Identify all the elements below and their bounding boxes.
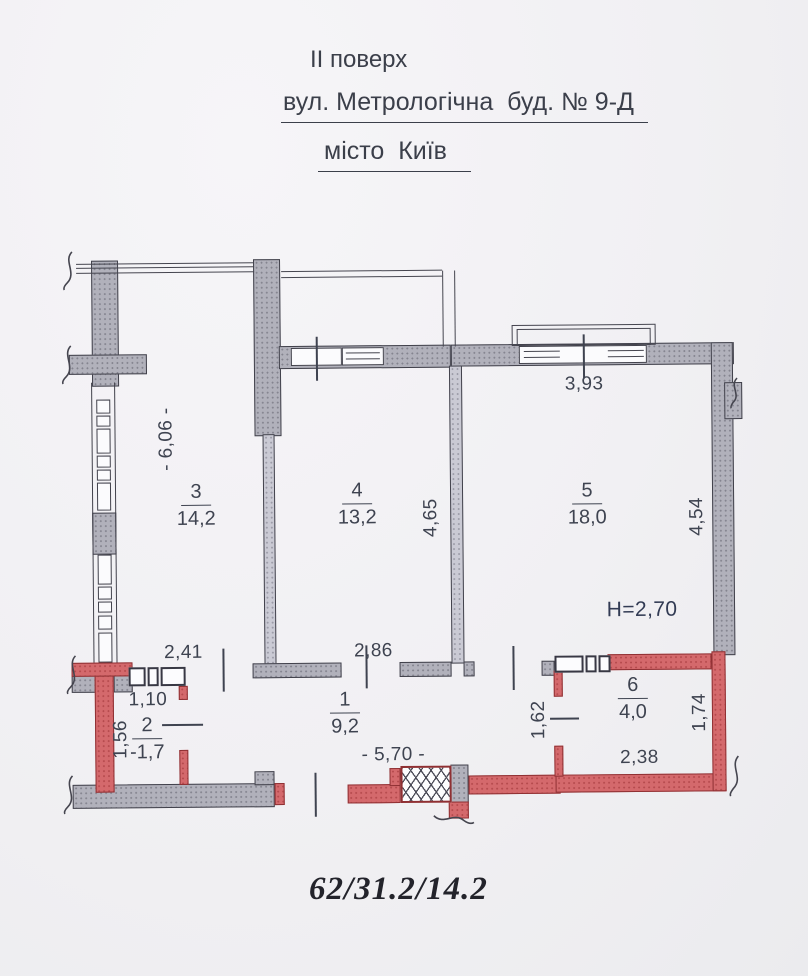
dim-mid-wall: 4,65 — [420, 498, 442, 537]
room2-door-leaf — [161, 667, 186, 686]
entrance-door-leaf — [598, 655, 610, 672]
room-3-label: 3 14,2 — [166, 481, 226, 532]
loggia-line-top — [281, 270, 442, 278]
red-room6-left-top — [554, 671, 563, 697]
dim-tick — [583, 334, 585, 378]
room-1-area: 9,2 — [331, 713, 359, 738]
wall-bottom-bump — [254, 771, 274, 785]
dim-top-right-window: 3,93 — [565, 373, 604, 395]
left-facade-wall — [91, 383, 117, 665]
room-3-area: 14,2 — [177, 506, 216, 531]
loggia-line-right — [442, 271, 456, 347]
room-1-label: 1 9,2 — [319, 688, 371, 738]
vent-column — [450, 764, 468, 803]
corridor-top-hatch-b — [400, 662, 452, 677]
dim-corridor-seg-right: 2,86 — [354, 640, 393, 662]
partition-r3-r4 — [263, 434, 277, 665]
dim-corridor-length: - 5,70 - — [362, 744, 426, 767]
room-5-area: 18,0 — [568, 504, 607, 529]
dim-tick — [314, 773, 316, 817]
room-4-area: 13,2 — [338, 504, 377, 529]
window-segment — [97, 470, 111, 481]
dim-room6-width: 2,38 — [620, 747, 659, 769]
window-segment — [96, 429, 110, 454]
break-mark — [726, 755, 742, 797]
break-mark — [63, 655, 79, 695]
break-mark — [59, 345, 75, 385]
room-2-number: 2 — [132, 714, 161, 739]
window-segment — [96, 400, 110, 414]
red-room6-left-bottom — [554, 746, 563, 777]
scanned-page: II поверх вул. Метрологічна буд. № 9-Д м… — [0, 0, 808, 976]
window-segment — [96, 416, 110, 427]
apartment-areas-label: 62/31.2/14.2 — [309, 871, 488, 908]
entrance-door-leaf — [585, 655, 596, 672]
dim-room2-depth: 1,56 — [110, 720, 132, 759]
vent-shaft — [400, 766, 451, 803]
red-bottom-b — [348, 784, 401, 803]
dim-tick — [222, 649, 224, 692]
wall-party-stub-left — [69, 354, 147, 375]
room-6-area: 4,0 — [619, 699, 647, 724]
dim-left-wall-height: - 6,06 - — [155, 407, 178, 471]
red-bottom-c — [469, 775, 561, 795]
window-segment — [98, 616, 112, 630]
red-room6-bottom — [556, 773, 726, 792]
window-segment — [98, 633, 112, 663]
dim-room6-left: 1,62 — [528, 700, 550, 739]
dim-room6-right: 1,74 — [689, 693, 711, 732]
room-5-label: 5 18,0 — [557, 479, 617, 530]
room-1-number: 1 — [330, 688, 359, 713]
floor-plan: 3 14,2 4 13,2 5 18,0 1 9,2 2 -1,7 6 4,0 … — [0, 0, 808, 976]
break-mark — [60, 775, 76, 815]
room-2-area: -1,7 — [130, 739, 165, 764]
entrance-door-leaf — [554, 655, 583, 672]
room4-window — [342, 347, 384, 365]
window-segment — [97, 456, 111, 468]
window-segment — [98, 602, 112, 613]
red-bottom-a — [275, 783, 285, 805]
room-5-number: 5 — [572, 479, 601, 504]
break-mark — [433, 811, 475, 827]
corridor-top-hatch-c — [464, 661, 475, 676]
red-room2-right-top — [179, 686, 188, 700]
room-4-label: 4 13,2 — [327, 479, 387, 530]
window-segment — [98, 555, 112, 585]
room-4-number: 4 — [342, 479, 371, 504]
red-room2-right-bottom — [179, 750, 188, 785]
room2-door-leaf — [148, 667, 159, 686]
balcony-rail-top-left — [76, 262, 254, 274]
break-mark — [60, 251, 76, 291]
room-6-number: 6 — [618, 674, 647, 699]
corridor-top-hatch-a — [253, 663, 342, 679]
window-segment — [98, 587, 112, 600]
ceiling-height-label: H=2,70 — [607, 598, 678, 623]
dim-tick — [316, 337, 318, 381]
room-6-label: 6 4,0 — [606, 674, 660, 724]
dim-right-wall: 4,54 — [686, 497, 708, 536]
dim-tick — [512, 646, 514, 690]
break-mark — [727, 377, 741, 409]
dim-room2-door-width: 1,10 — [128, 689, 167, 711]
red-room6-top — [607, 653, 711, 670]
room-3-number: 3 — [181, 481, 210, 506]
red-wall-left-top — [72, 662, 133, 677]
window-segment — [97, 483, 111, 511]
dim-tick — [550, 717, 579, 719]
red-room6-right — [711, 651, 726, 791]
room2-door-leaf — [129, 667, 146, 686]
dim-corridor-seg-left: 2,41 — [164, 642, 203, 664]
red-bottom-b-step — [389, 768, 400, 786]
partition-r4-r5 — [449, 365, 465, 663]
wall-column-r3-r4 — [253, 259, 282, 436]
